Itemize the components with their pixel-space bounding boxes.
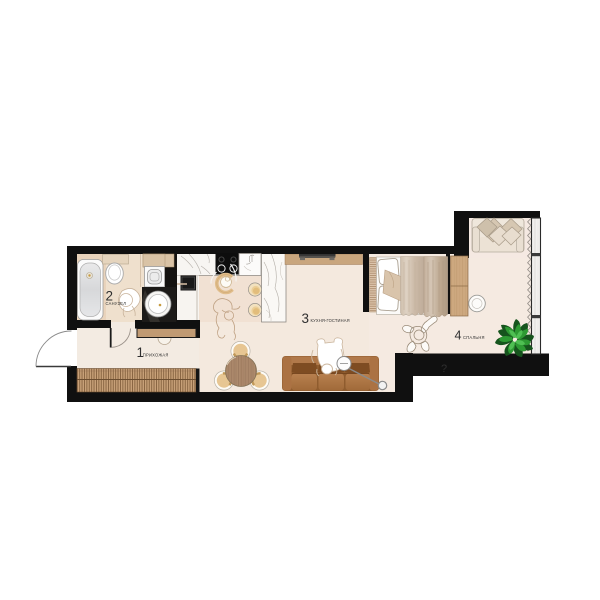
svg-text:КУХНЯ-ГОСТИНАЯ: КУХНЯ-ГОСТИНАЯ [311, 318, 350, 323]
svg-text:ПРИХОЖАЯ: ПРИХОЖАЯ [143, 353, 169, 358]
svg-text:?: ? [441, 363, 447, 375]
svg-text:САНУЗЕЛ: САНУЗЕЛ [106, 301, 127, 306]
svg-text:4: 4 [455, 329, 462, 343]
svg-text:3: 3 [302, 311, 310, 326]
svg-text:СПАЛЬНЯ: СПАЛЬНЯ [463, 335, 485, 340]
